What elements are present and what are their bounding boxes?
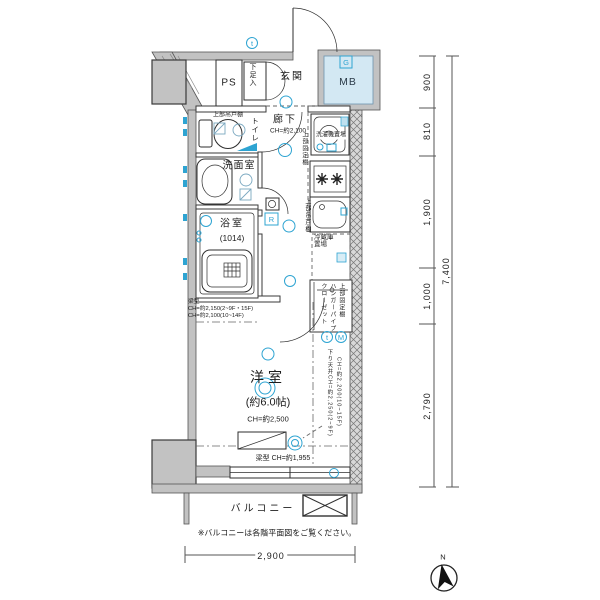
room-label-bathroom: 浴室 <box>220 218 244 230</box>
label-toilet-shelf: 上部吊戸棚 <box>213 113 243 120</box>
fridge-outlet <box>337 253 346 262</box>
dim-total-7400: 7,400 <box>441 257 451 285</box>
dim-bottom: 2,900 <box>255 551 287 561</box>
label-bathroom-size: (1014) <box>220 234 245 244</box>
room-label-balcony: バルコニー <box>231 503 296 515</box>
svg-text:t: t <box>251 39 254 48</box>
room-label-washroom: 洗面室 <box>223 160 256 172</box>
dim-900: 900 <box>422 73 432 91</box>
label-washer: 洗濯機置場 <box>315 133 347 140</box>
label-closet-shelf: 上部固定棚 <box>337 283 344 318</box>
room-label-hallway: 廊下 <box>273 114 297 126</box>
room-label-ps: PS <box>221 77 236 89</box>
light-genkan <box>280 96 292 108</box>
annotation-down-ceiling-1: 下り天井CH=約2,250(2~9F) <box>326 349 332 437</box>
dim-810: 810 <box>422 122 432 140</box>
label-fridge: 冷蔵庫 置場 <box>314 234 334 249</box>
annotation-beam-upper: 梁型 CH=約2,150(2~9F・15F) CH=約2,100(10~14F) <box>188 299 253 320</box>
compass-north-label: N <box>440 554 445 563</box>
light-hall-2 <box>283 220 295 232</box>
shelf-wedge <box>237 143 257 151</box>
label-shoe-cabinet: 下足入 <box>248 63 256 87</box>
annotation-beam-lower: 梁型 CH=約1,955 <box>256 455 311 463</box>
water-heater-remote <box>266 198 279 210</box>
dim-1900: 1,900 <box>422 198 432 226</box>
room-label-mb: MB <box>339 76 357 88</box>
light-symbol <box>240 174 252 186</box>
wall-switches <box>183 117 187 280</box>
balcony-slab <box>152 484 362 493</box>
balcony-rail-right <box>352 493 357 524</box>
label-kitchen-shelf: 上部吊戸棚 <box>303 198 310 233</box>
light-room-leader <box>288 436 302 450</box>
entrance-door-arc <box>293 8 337 52</box>
balcony-note: ※バルコニーは各階平面図をご覧ください。 <box>198 528 357 537</box>
compass <box>431 563 457 591</box>
room-label-toilet: トイレ <box>250 117 259 143</box>
light-room-small <box>262 348 274 360</box>
room-label-genkan: 玄関 <box>280 71 304 83</box>
label-washer-shelf: 上部固定棚 <box>300 131 307 166</box>
dim-1000: 1,000 <box>422 282 432 310</box>
floorplan-page: t G R t M PS 下足入 玄関 MB 上部吊戸棚 トイレ 廊下 CH=約… <box>0 0 600 600</box>
svg-text:M: M <box>338 333 344 342</box>
label-closet-pipe: ハンガーパイプ <box>328 283 335 332</box>
room-label-western: 洋室 <box>250 369 286 385</box>
balcony-rail-left <box>184 493 189 524</box>
dim-2790: 2,790 <box>422 392 432 420</box>
svg-text:t: t <box>326 333 329 342</box>
leader-line <box>303 426 322 438</box>
light-hall-3 <box>285 276 296 287</box>
label-western-ch: CH=約2,500 <box>247 416 288 425</box>
floorplan-drawing: t G R t M <box>0 0 600 600</box>
svg-text:G: G <box>343 58 349 67</box>
svg-text:R: R <box>269 215 275 224</box>
light-hall-1 <box>279 144 292 157</box>
label-closet: クローゼット <box>319 283 326 325</box>
toilet-tank <box>199 120 212 147</box>
annotation-down-ceiling-2: CH=約2,200(10~15F) <box>335 357 341 427</box>
washer-faucet <box>341 117 348 126</box>
label-western-size: (約6.0帖) <box>246 397 291 410</box>
